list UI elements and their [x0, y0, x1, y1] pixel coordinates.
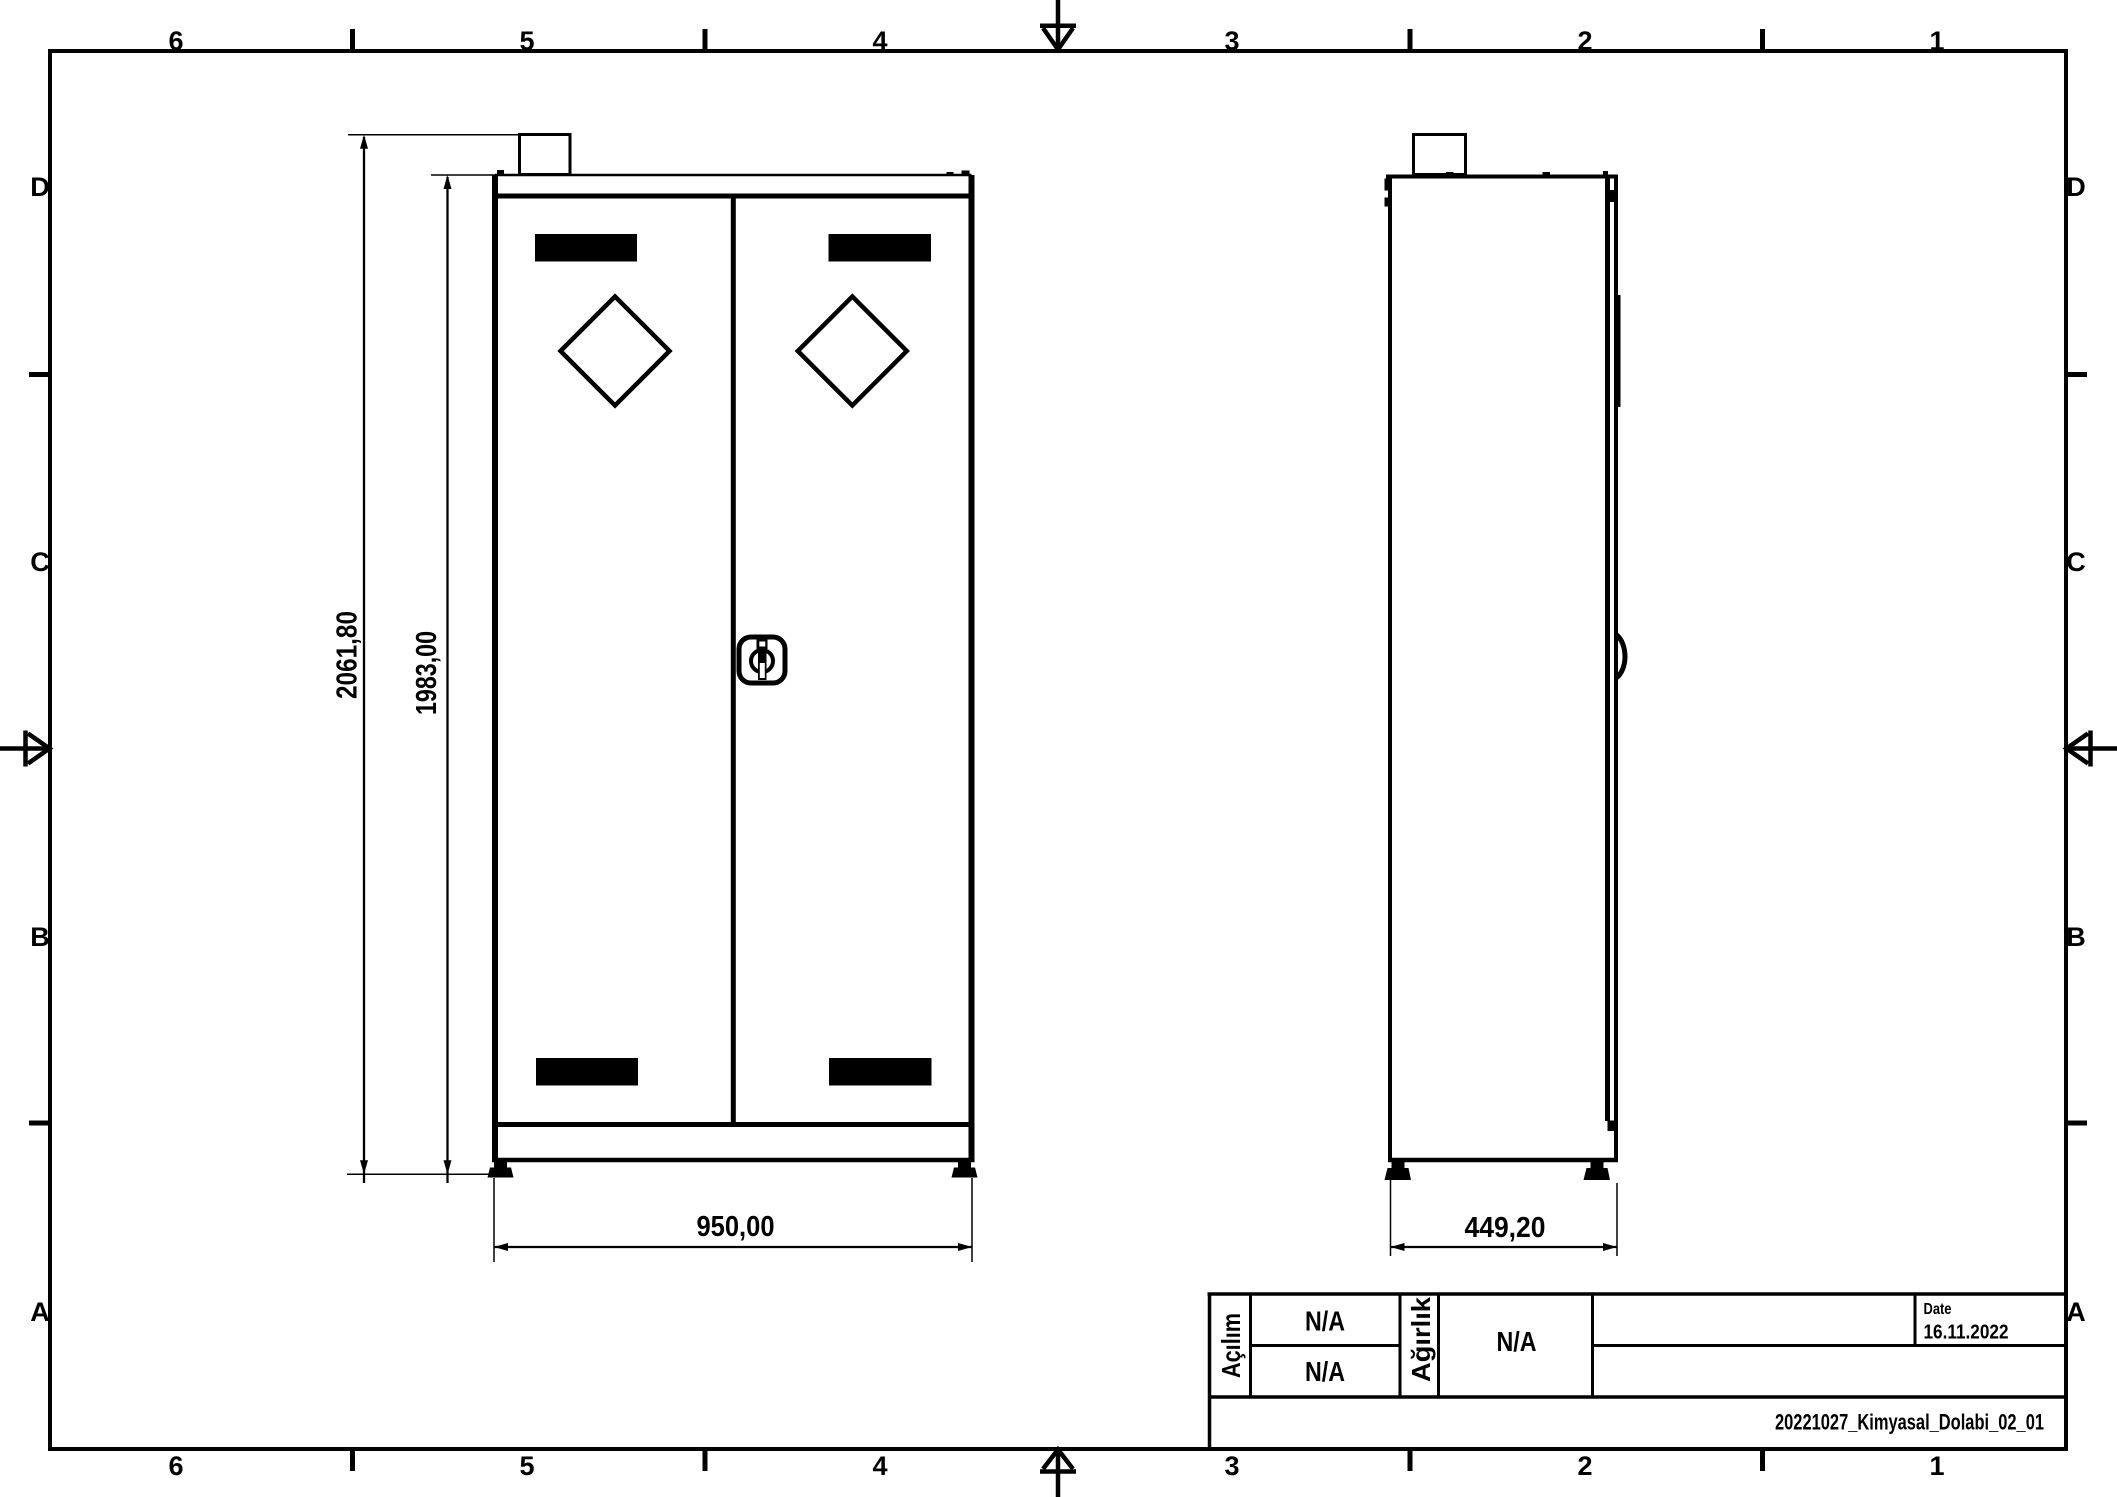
- svg-text:3: 3: [1224, 1451, 1239, 1481]
- svg-text:2061,80: 2061,80: [332, 611, 364, 699]
- svg-text:4: 4: [872, 26, 887, 56]
- svg-text:2: 2: [1577, 1451, 1592, 1481]
- svg-text:N/A: N/A: [1305, 1356, 1345, 1387]
- svg-text:N/A: N/A: [1305, 1306, 1345, 1337]
- svg-text:449,20: 449,20: [1465, 1212, 1546, 1244]
- svg-text:2: 2: [1577, 26, 1592, 56]
- svg-text:C: C: [30, 547, 50, 577]
- svg-text:D: D: [2066, 172, 2086, 202]
- svg-text:950,00: 950,00: [697, 1211, 775, 1243]
- svg-text:6: 6: [168, 26, 183, 56]
- svg-text:D: D: [30, 172, 50, 202]
- svg-text:A: A: [2066, 1297, 2086, 1327]
- svg-text:3: 3: [1224, 26, 1239, 56]
- svg-text:4: 4: [872, 1451, 887, 1481]
- svg-text:Ağırlık: Ağırlık: [1406, 1296, 1436, 1382]
- svg-text:Date: Date: [1924, 1301, 1952, 1318]
- svg-text:Açılım: Açılım: [1216, 1313, 1246, 1378]
- svg-text:A: A: [30, 1297, 50, 1327]
- svg-text:B: B: [2066, 922, 2086, 952]
- svg-text:6: 6: [168, 1451, 183, 1481]
- svg-text:B: B: [30, 922, 50, 952]
- svg-text:20221027_Kimyasal_Dolabi_02_01: 20221027_Kimyasal_Dolabi_02_01: [1775, 1410, 2044, 1435]
- svg-text:5: 5: [519, 26, 534, 56]
- svg-text:1: 1: [1929, 1451, 1944, 1481]
- svg-text:5: 5: [519, 1451, 534, 1481]
- svg-text:N/A: N/A: [1497, 1326, 1537, 1357]
- svg-text:1983,00: 1983,00: [411, 631, 443, 715]
- svg-text:C: C: [2066, 547, 2086, 577]
- svg-text:16.11.2022: 16.11.2022: [1924, 1322, 2009, 1344]
- svg-text:1: 1: [1929, 26, 1944, 56]
